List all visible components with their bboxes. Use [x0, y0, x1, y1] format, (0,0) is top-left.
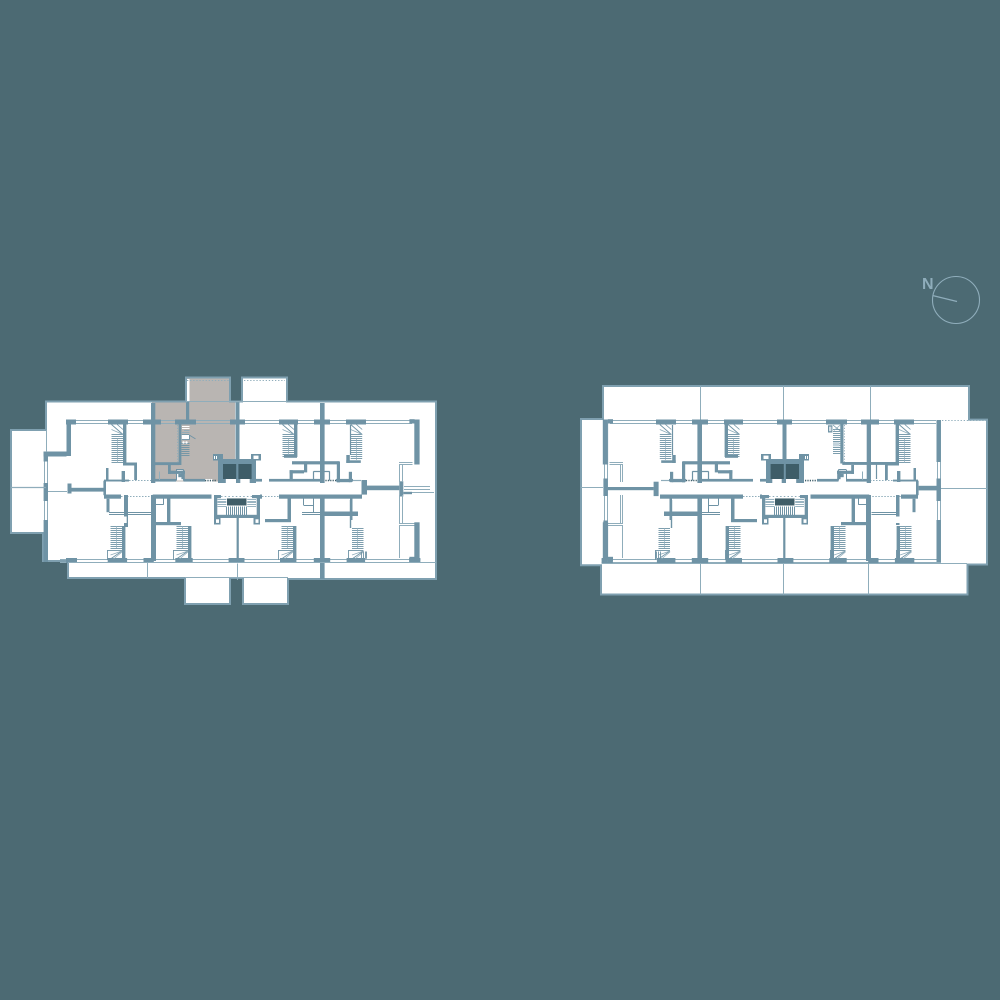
svg-text:N: N [922, 276, 934, 293]
